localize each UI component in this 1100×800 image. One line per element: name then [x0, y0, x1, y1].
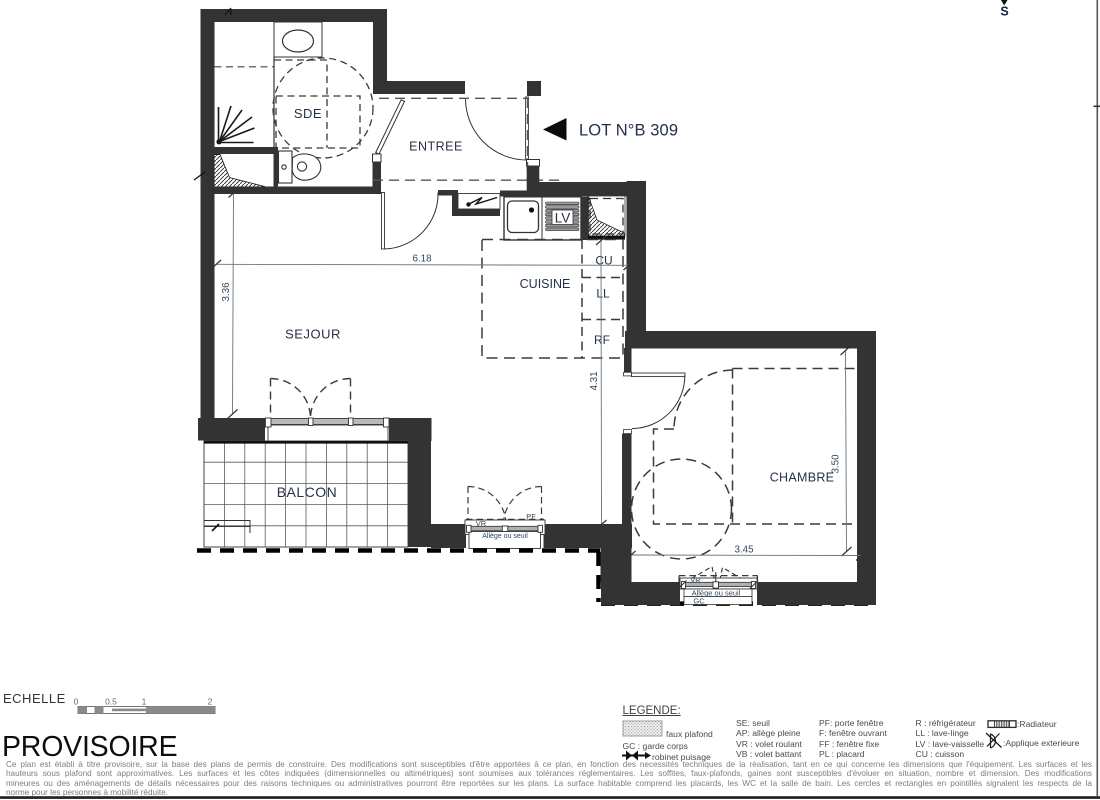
svg-text:4.31: 4.31	[589, 371, 600, 390]
svg-text:SEJOUR: SEJOUR	[285, 327, 341, 342]
svg-text:0: 0	[74, 697, 79, 707]
svg-text:PF: PF	[526, 512, 536, 521]
svg-text:SDE: SDE	[294, 106, 322, 121]
svg-text:3.36: 3.36	[221, 282, 232, 302]
svg-text:S: S	[1000, 5, 1008, 19]
svg-text:0.5: 0.5	[105, 697, 117, 707]
svg-text:2: 2	[208, 697, 213, 707]
svg-text:CHAMBRE: CHAMBRE	[770, 471, 835, 485]
svg-text:VR: VR	[690, 575, 701, 584]
svg-text:CUISINE: CUISINE	[520, 277, 571, 291]
svg-text:1: 1	[142, 697, 147, 707]
svg-text:GC: GC	[693, 596, 705, 605]
svg-text:6.18: 6.18	[412, 254, 432, 265]
svg-text:BALCON: BALCON	[277, 484, 338, 500]
svg-text:Allège ou seuil: Allège ou seuil	[482, 533, 528, 540]
svg-text:LV: LV	[555, 210, 571, 225]
svg-text:3.45: 3.45	[734, 545, 754, 556]
svg-text:3.50: 3.50	[831, 454, 842, 474]
svg-text:LOT N°B 309: LOT N°B 309	[579, 122, 678, 140]
svg-text:ENTREE: ENTREE	[409, 140, 463, 154]
svg-text:VR: VR	[476, 519, 487, 528]
svg-text:RF: RF	[594, 333, 610, 347]
svg-text:LL: LL	[596, 287, 610, 301]
